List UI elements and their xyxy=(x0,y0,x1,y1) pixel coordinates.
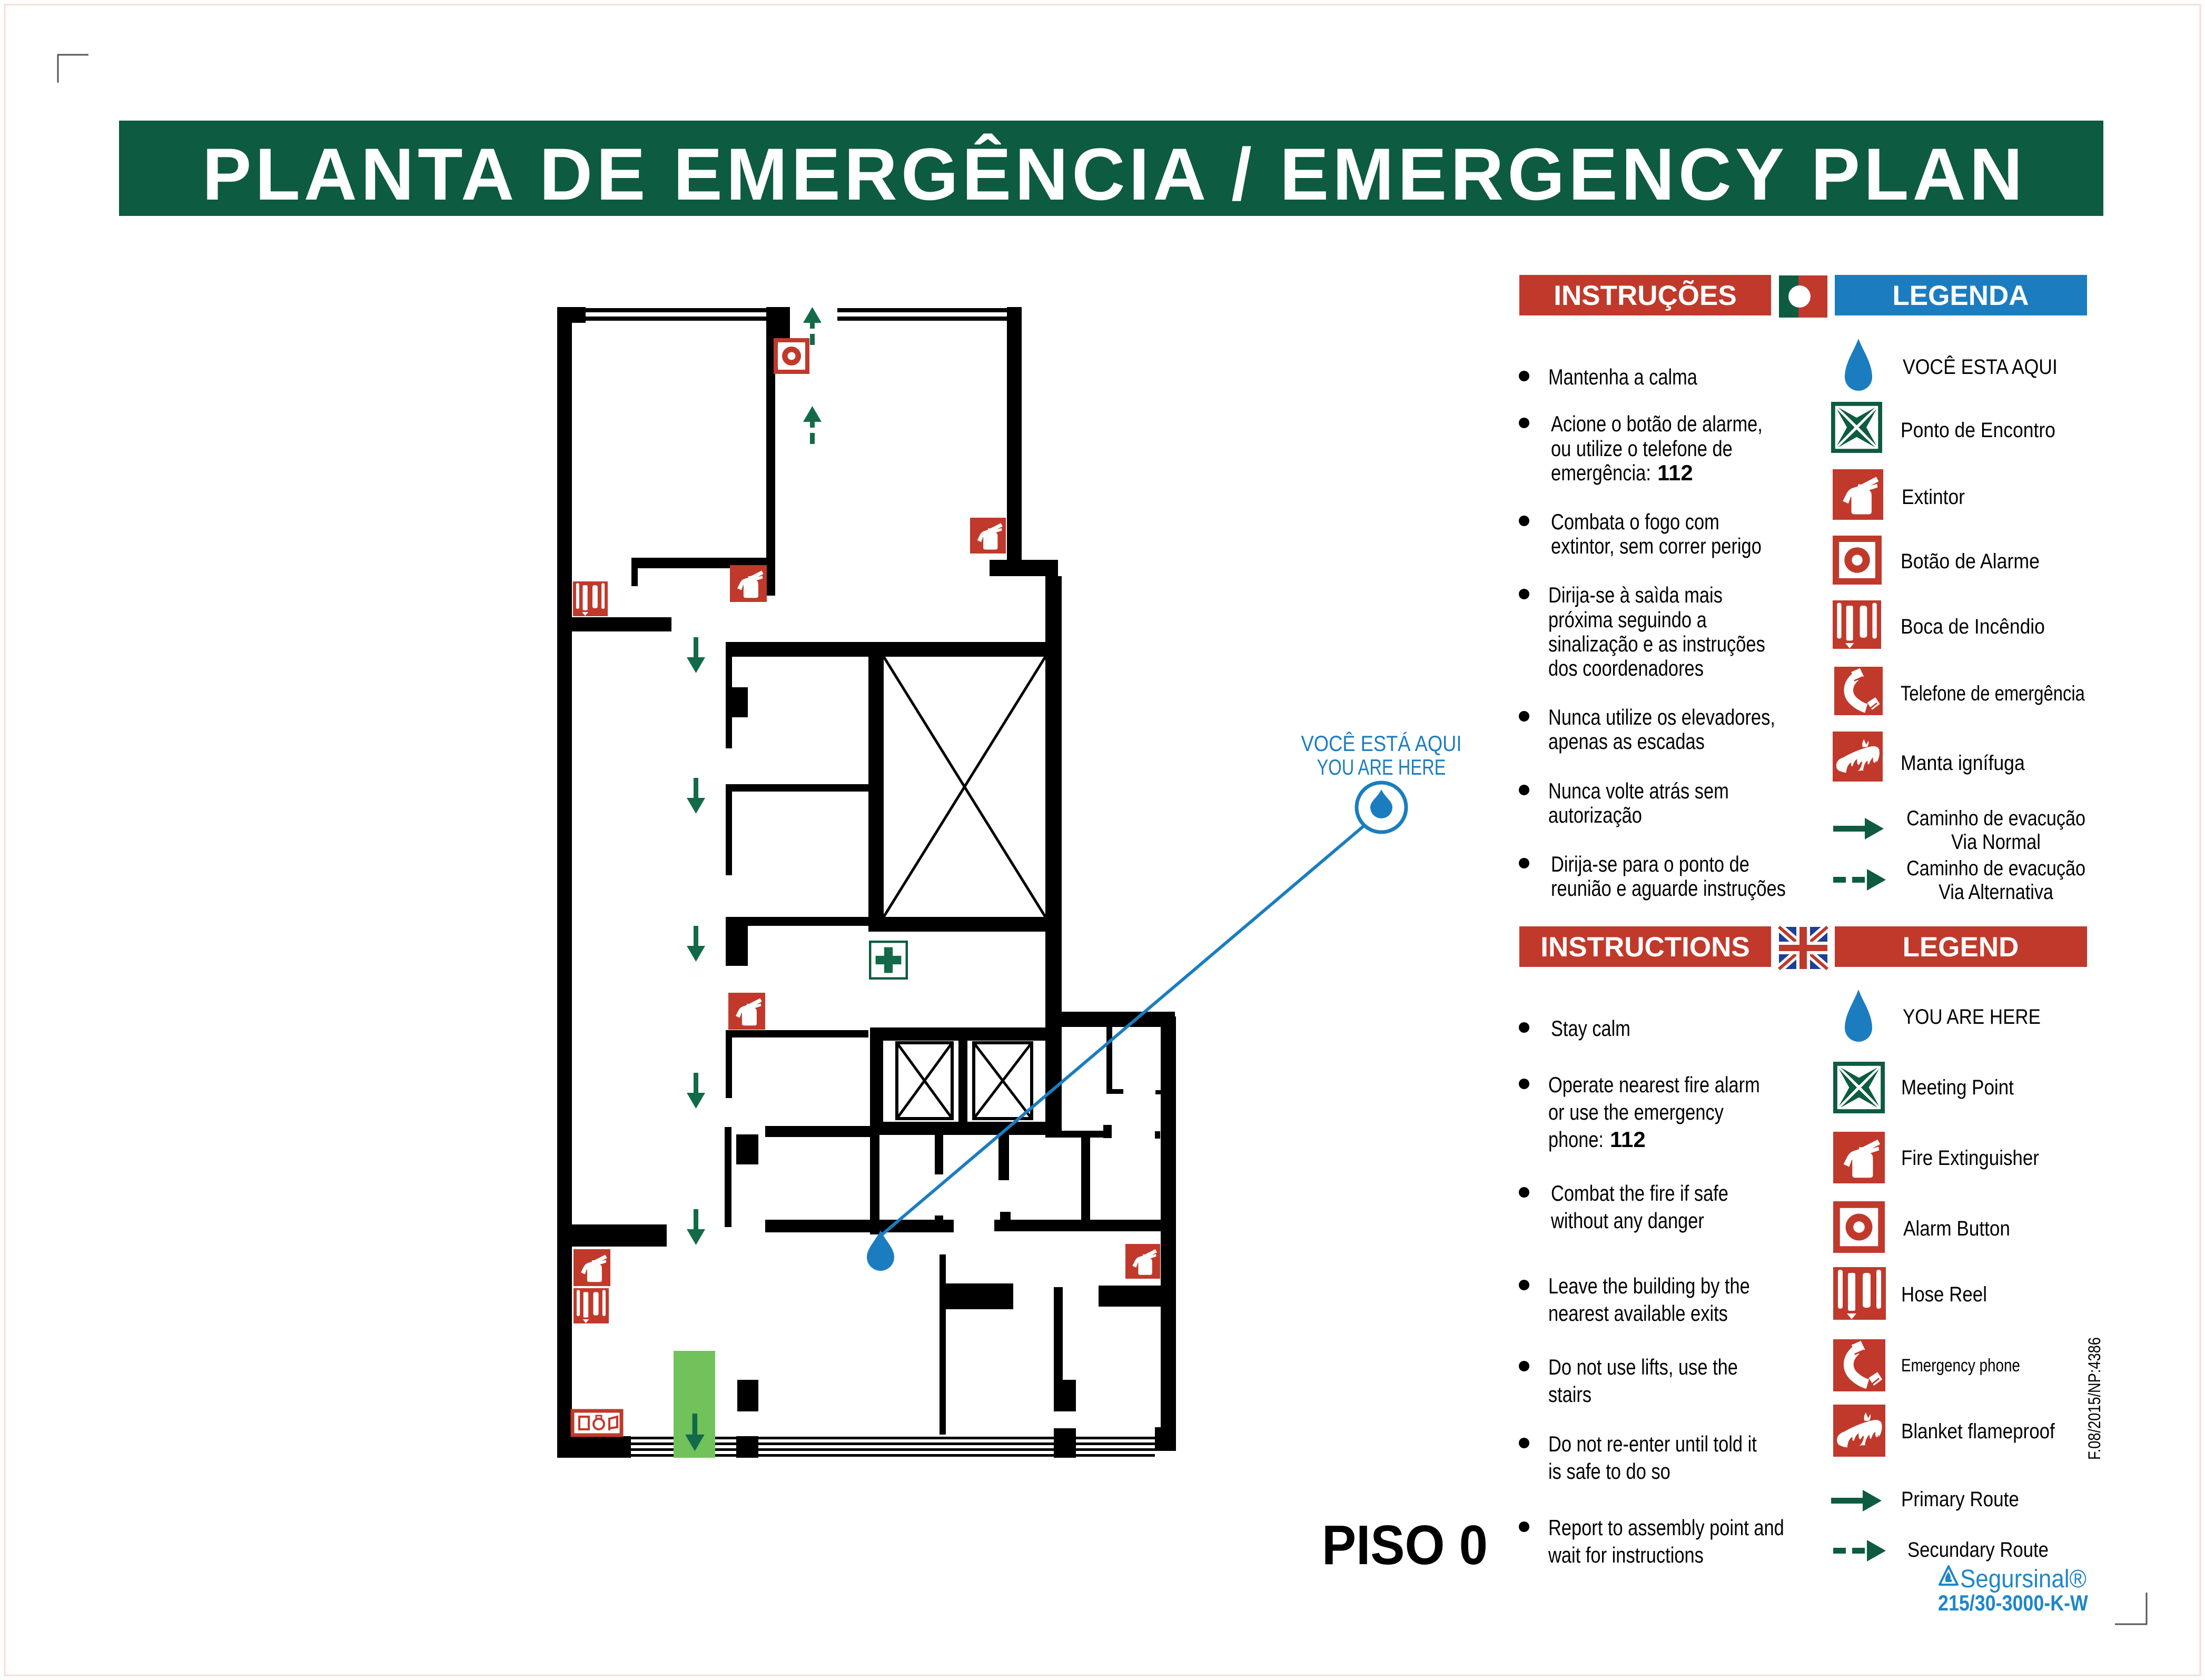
svg-text:Nunca utilize os elevadores,: Nunca utilize os elevadores, xyxy=(1548,705,1775,730)
svg-text:autorização: autorização xyxy=(1548,803,1642,828)
svg-text:nearest available exits: nearest available exits xyxy=(1548,1301,1728,1326)
svg-text:F.08/2015/NP:4386: F.08/2015/NP:4386 xyxy=(2085,1337,2104,1460)
svg-text:Secundary Route: Secundary Route xyxy=(1907,1538,2049,1562)
svg-text:YOU ARE HERE: YOU ARE HERE xyxy=(1317,755,1446,779)
svg-text:INSTRUÇÕES: INSTRUÇÕES xyxy=(1554,280,1736,311)
svg-text:Primary Route: Primary Route xyxy=(1901,1487,2019,1511)
svg-text:VOCÊ ESTÁ AQUI: VOCÊ ESTÁ AQUI xyxy=(1301,732,1462,756)
svg-text:112: 112 xyxy=(1657,460,1693,485)
svg-text:reunião e aguarde instruções: reunião e aguarde instruções xyxy=(1551,876,1786,901)
svg-text:Dirija-se à saìda mais: Dirija-se à saìda mais xyxy=(1548,583,1723,608)
svg-text:PLANTA DE EMERGÊNCIA / EMERGEN: PLANTA DE EMERGÊNCIA / EMERGENCY PLAN xyxy=(202,133,2026,215)
svg-text:Caminho de evacução: Caminho de evacução xyxy=(1906,856,2085,879)
svg-text:Segursinal®: Segursinal® xyxy=(1960,1564,2087,1593)
svg-text:Blanket flameproof: Blanket flameproof xyxy=(1901,1419,2055,1443)
svg-text:LEGENDA: LEGENDA xyxy=(1892,280,2029,311)
svg-text:stairs: stairs xyxy=(1548,1382,1591,1407)
svg-text:dos coordenadores: dos coordenadores xyxy=(1548,656,1704,681)
svg-text:Caminho de evacução: Caminho de evacução xyxy=(1906,806,2085,829)
svg-text:Operate nearest fire alarm: Operate nearest fire alarm xyxy=(1548,1073,1760,1098)
svg-text:Stay calm: Stay calm xyxy=(1551,1016,1630,1041)
svg-text:Hose Reel: Hose Reel xyxy=(1901,1282,1987,1306)
svg-text:sinalização e as instruções: sinalização e as instruções xyxy=(1548,632,1765,657)
svg-text:Mantenha a calma: Mantenha a calma xyxy=(1548,365,1697,390)
svg-text:Meeting Point: Meeting Point xyxy=(1901,1075,2014,1099)
svg-text:VOCÊ ESTA AQUI: VOCÊ ESTA AQUI xyxy=(1903,355,2058,379)
svg-text:INSTRUCTIONS: INSTRUCTIONS xyxy=(1540,932,1750,963)
svg-text:215/30-3000-K-W: 215/30-3000-K-W xyxy=(1938,1591,2088,1615)
svg-text:Combata o fogo com: Combata o fogo com xyxy=(1551,510,1719,535)
svg-text:Report to assembly point and: Report to assembly point and xyxy=(1548,1516,1784,1540)
svg-text:112: 112 xyxy=(1610,1127,1646,1152)
svg-text:Do not re-enter until told it: Do not re-enter until told it xyxy=(1548,1432,1757,1457)
svg-text:Dirija-se para o ponto de: Dirija-se para o ponto de xyxy=(1551,852,1749,877)
svg-text:Do not use lifts, use the: Do not use lifts, use the xyxy=(1548,1355,1738,1380)
svg-text:próxima seguindo a: próxima seguindo a xyxy=(1548,608,1707,633)
svg-text:is safe to do so: is safe to do so xyxy=(1548,1459,1670,1484)
svg-text:Combat the fire if safe: Combat the fire if safe xyxy=(1551,1181,1728,1206)
svg-text:YOU ARE HERE: YOU ARE HERE xyxy=(1903,1005,2041,1029)
svg-text:Telefone de emergência: Telefone de emergência xyxy=(1901,681,2085,705)
svg-text:phone:: phone: xyxy=(1548,1128,1604,1152)
svg-text:or use the emergency: or use the emergency xyxy=(1548,1100,1724,1125)
svg-text:Via Normal: Via Normal xyxy=(1951,830,2041,854)
svg-text:Via Alternativa: Via Alternativa xyxy=(1939,879,2053,903)
svg-text:Botão de Alarme: Botão de Alarme xyxy=(1901,550,2040,573)
svg-text:emergência:: emergência: xyxy=(1551,461,1651,486)
svg-text:Extintor: Extintor xyxy=(1902,486,1965,509)
svg-text:Nunca volte atrás sem: Nunca volte atrás sem xyxy=(1548,779,1729,804)
svg-text:Manta ignífuga: Manta ignífuga xyxy=(1901,752,2025,775)
svg-text:apenas as escadas: apenas as escadas xyxy=(1548,729,1705,754)
svg-text:Alarm Button: Alarm Button xyxy=(1903,1217,2010,1240)
svg-text:extintor, sem correr perigo: extintor, sem correr perigo xyxy=(1551,534,1762,559)
svg-text:wait for instructions: wait for instructions xyxy=(1548,1543,1704,1568)
svg-text:without any danger: without any danger xyxy=(1550,1209,1704,1233)
svg-text:LEGEND: LEGEND xyxy=(1903,932,2019,963)
svg-text:Boca de Incêndio: Boca de Incêndio xyxy=(1901,615,2045,638)
svg-text:PISO 0: PISO 0 xyxy=(1322,1514,1488,1576)
svg-text:Acione o botão de alarme,: Acione o botão de alarme, xyxy=(1551,412,1763,437)
svg-text:ou utilize o telefone de: ou utilize o telefone de xyxy=(1551,437,1733,461)
svg-text:Emergency phone: Emergency phone xyxy=(1901,1355,2020,1375)
svg-text:Fire Extinguisher: Fire Extinguisher xyxy=(1901,1146,2039,1170)
svg-text:Leave the building by the: Leave the building by the xyxy=(1548,1274,1750,1299)
svg-text:Ponto de Encontro: Ponto de Encontro xyxy=(1901,419,2055,442)
